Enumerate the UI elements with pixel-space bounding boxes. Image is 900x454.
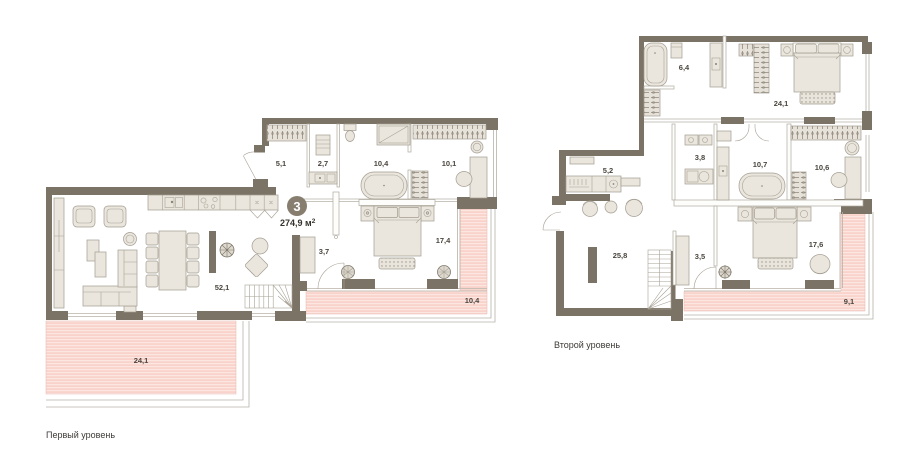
svg-text:Второй уровень: Второй уровень	[554, 340, 620, 350]
svg-text:5,1: 5,1	[276, 159, 286, 168]
svg-text:5,2: 5,2	[603, 166, 613, 175]
svg-text:10,7: 10,7	[753, 160, 768, 169]
svg-text:9,1: 9,1	[844, 297, 854, 306]
svg-text:10,6: 10,6	[815, 163, 830, 172]
svg-text:6,4: 6,4	[679, 63, 690, 72]
svg-text:3: 3	[293, 199, 300, 214]
svg-text:10,4: 10,4	[374, 159, 389, 168]
svg-text:52,1: 52,1	[215, 283, 230, 292]
svg-text:24,1: 24,1	[134, 356, 149, 365]
svg-text:24,1: 24,1	[774, 99, 789, 108]
svg-text:17,4: 17,4	[436, 236, 451, 245]
svg-text:Первый уровень: Первый уровень	[46, 430, 115, 440]
svg-text:3,7: 3,7	[319, 247, 329, 256]
svg-text:17,6: 17,6	[809, 240, 824, 249]
svg-text:3,5: 3,5	[695, 252, 705, 261]
svg-text:10,4: 10,4	[465, 296, 480, 305]
svg-text:2,7: 2,7	[318, 159, 328, 168]
svg-text:25,8: 25,8	[613, 251, 628, 260]
svg-text:10,1: 10,1	[442, 159, 457, 168]
svg-text:3,8: 3,8	[695, 153, 705, 162]
svg-text:274,9 м2: 274,9 м2	[280, 218, 316, 228]
